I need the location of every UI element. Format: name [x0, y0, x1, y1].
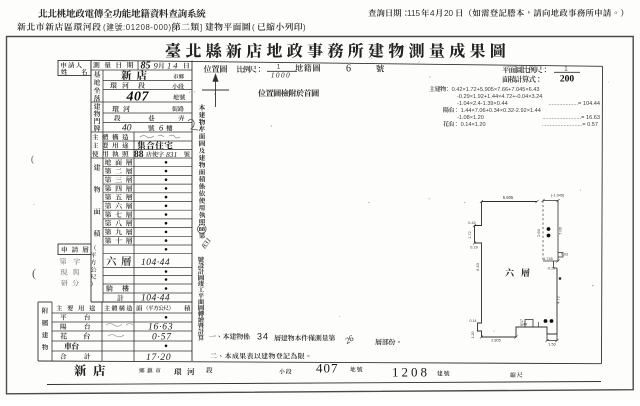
svg-text:1.50: 1.50 [548, 343, 555, 347]
svg-text:(-1.045): (-1.045) [551, 194, 565, 198]
svg-text:1: 1 [564, 66, 568, 73]
svg-text:88: 88 [134, 150, 144, 160]
svg-text:-1.04×2.4-1.39×0.44: -1.04×2.4-1.39×0.44 [457, 101, 508, 107]
svg-text:1208: 1208 [392, 365, 430, 380]
svg-text:-1.08×1.20: -1.08×1.20 [457, 115, 484, 121]
svg-text:(: ( [32, 266, 36, 280]
svg-text:：1.44×7.06+0.34×0.32-2.92×1.44: ：1.44×7.06+0.34×0.32-2.92×1.44 [455, 108, 541, 114]
svg-text:6: 6 [346, 64, 351, 75]
svg-text:104·44: 104·44 [141, 258, 170, 268]
svg-text:2.60: 2.60 [536, 228, 541, 237]
svg-text:]: ] [200, 23, 202, 32]
svg-text:5.905: 5.905 [503, 195, 514, 200]
svg-text:(: ( [252, 23, 255, 32]
svg-text:17·20: 17·20 [146, 353, 171, 363]
svg-text:.........................= 16.: .........................= 16.63 [542, 115, 600, 121]
svg-text:1000: 1000 [271, 72, 291, 80]
svg-text:1: 1 [277, 64, 281, 71]
svg-text:-0.29: -0.29 [547, 267, 555, 271]
svg-text:831: 831 [166, 150, 177, 159]
svg-text:4: 4 [430, 9, 435, 18]
svg-text:-0.29×1.92+1.44×4.72+-0.04×3.2: -0.29×1.92+1.44×4.72+-0.04×3.24 [457, 94, 542, 100]
svg-text:1.72: 1.72 [468, 231, 472, 238]
svg-text:..........................= 0.: ..........................= 0.57 [542, 122, 598, 128]
svg-text:0.93: 0.93 [561, 253, 568, 257]
svg-text:4.72: 4.72 [556, 295, 561, 304]
svg-text:40: 40 [122, 124, 132, 134]
svg-text:115: 115 [407, 9, 420, 18]
svg-text:14: 14 [167, 61, 180, 71]
svg-text:34: 34 [257, 332, 269, 342]
svg-text:6.43: 6.43 [475, 262, 480, 271]
svg-text:0·57: 0·57 [152, 333, 172, 343]
svg-text:2.805: 2.805 [491, 339, 501, 343]
svg-text:...................= 104.44: ...................= 104.44 [549, 101, 600, 107]
svg-text:85: 85 [141, 61, 151, 72]
svg-text:407: 407 [316, 361, 339, 376]
svg-text:0.14: 0.14 [470, 319, 477, 323]
svg-text:1.20: 1.20 [471, 332, 475, 339]
svg-text:): ) [303, 23, 306, 32]
svg-text:1.745: 1.745 [543, 257, 553, 261]
svg-text:0.42: 0.42 [468, 221, 475, 225]
svg-text:88: 88 [199, 226, 205, 233]
svg-text:(: ( [31, 154, 34, 164]
svg-text:：0.14×1.20: ：0.14×1.20 [455, 122, 486, 128]
svg-text:0.29: 0.29 [470, 246, 477, 250]
svg-text:200: 200 [560, 75, 575, 85]
svg-text:：0.42×1.72+5.905×7.66+7.045×6.: ：0.42×1.72+5.905×7.66+7.045×6.43 [446, 87, 539, 93]
svg-text:7.06: 7.06 [558, 226, 563, 235]
svg-text:104·44: 104·44 [141, 294, 170, 304]
svg-text:(建號:01208-000)[: (建號:01208-000)[ [103, 22, 175, 32]
svg-text:20: 20 [444, 9, 454, 18]
svg-text:407: 407 [126, 90, 150, 105]
svg-text:16·63: 16·63 [148, 323, 173, 333]
svg-text:1.44: 1.44 [520, 323, 527, 327]
